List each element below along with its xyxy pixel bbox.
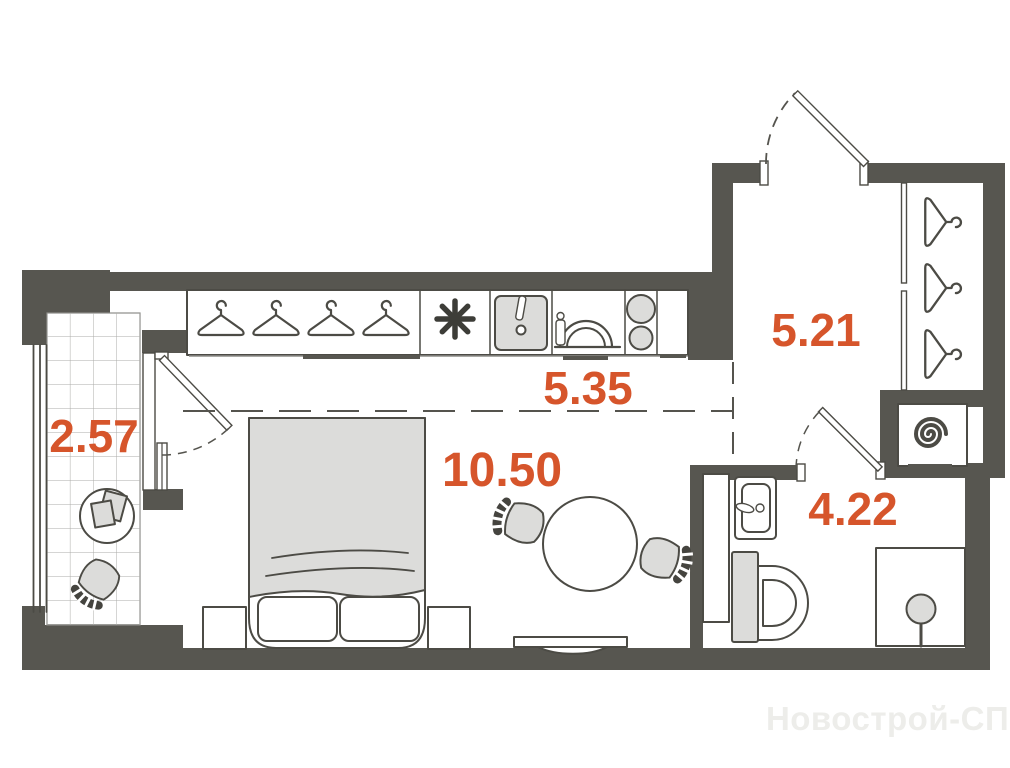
washing-machine-icon <box>898 404 967 466</box>
nightstand <box>203 607 246 649</box>
hall-closet <box>902 183 961 390</box>
closet-door <box>902 183 907 283</box>
watermark: Новострой-СПб <box>766 700 1010 737</box>
hallway-area-label: 5.21 <box>771 304 861 356</box>
kitchen-sink-icon <box>495 296 547 350</box>
hanger-icon <box>925 330 961 377</box>
door-swing-icon <box>796 410 821 469</box>
balcony-glazing <box>34 345 47 612</box>
kitchen-zone <box>187 290 688 358</box>
door-swing-icon <box>162 428 229 455</box>
balcony-window <box>157 443 167 490</box>
kitchen-area-label: 5.35 <box>543 362 633 414</box>
balcony-partition <box>143 352 232 490</box>
nightstand <box>428 607 470 649</box>
shower-icon <box>876 548 965 646</box>
dining-table-icon <box>487 495 697 591</box>
bathroom-area-label: 4.22 <box>808 483 898 535</box>
pillow <box>258 597 337 641</box>
floor-plan: 2.57 5.35 10.50 5.21 4.22 Новострой-СПб <box>0 0 1010 768</box>
balcony-table-icon <box>80 489 134 543</box>
hanger-icon <box>925 264 961 311</box>
bed <box>249 418 425 648</box>
door-swing-icon <box>766 93 795 164</box>
bathroom-door <box>796 407 885 481</box>
chair-icon <box>487 495 548 547</box>
bathroom-cabinet <box>703 474 729 622</box>
toilet-icon <box>732 552 808 642</box>
entrance-door <box>760 91 868 185</box>
pillow <box>340 597 419 641</box>
hanger-icon <box>925 198 961 245</box>
fridge-asterisk-icon <box>437 301 473 337</box>
bathroom-sink-icon <box>735 477 776 539</box>
hallway <box>760 91 967 466</box>
chair-icon <box>636 534 697 586</box>
balcony-room <box>34 313 141 625</box>
counter-front-line <box>189 356 688 358</box>
closet-door <box>902 291 907 390</box>
living-area-label: 10.50 <box>442 444 562 497</box>
balcony-door <box>159 356 231 455</box>
balcony-area-label: 2.57 <box>49 410 139 462</box>
wall-layer <box>22 163 1005 670</box>
floor-plan-page: 2.57 5.35 10.50 5.21 4.22 Новострой-СПб <box>0 0 1010 768</box>
